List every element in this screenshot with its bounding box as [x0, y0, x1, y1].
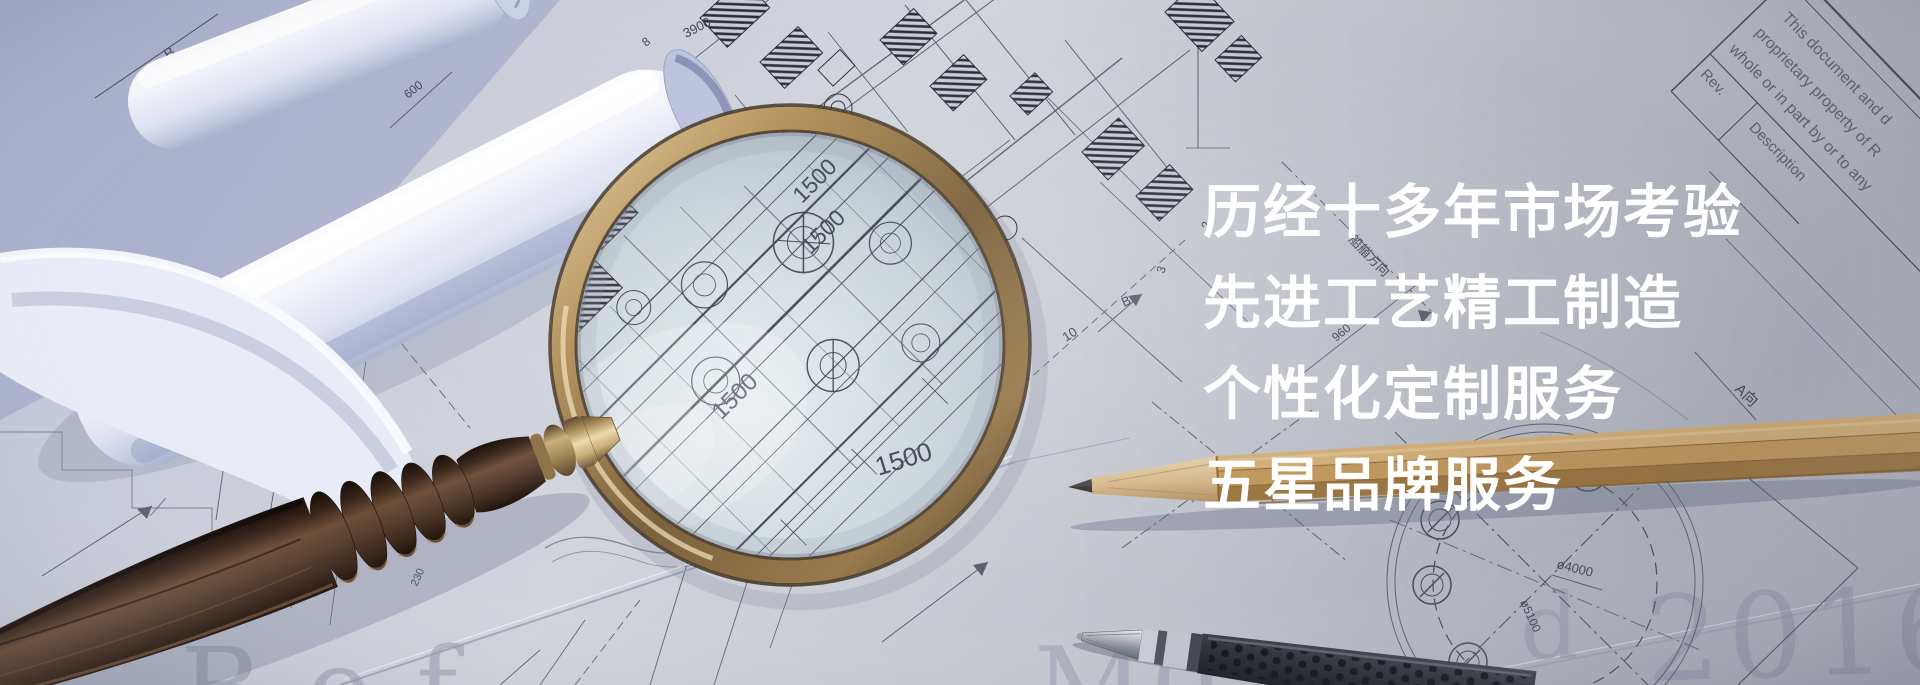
headline-line-1: 历经十多年市场考验 [1203, 167, 1743, 258]
headline-line-3: 个性化定制服务 [1203, 349, 1743, 440]
hero-banner: B 600 8 3900 2 3 B 10 960 230 船艏方向 A向 Th… [0, 0, 1920, 685]
hero-headline: 历经十多年市场考验 先进工艺精工制造 个性化定制服务 五星品牌服务 [1203, 167, 1743, 531]
headline-line-2: 先进工艺精工制造 [1203, 258, 1743, 349]
headline-line-4: 五星品牌服务 [1203, 440, 1743, 531]
